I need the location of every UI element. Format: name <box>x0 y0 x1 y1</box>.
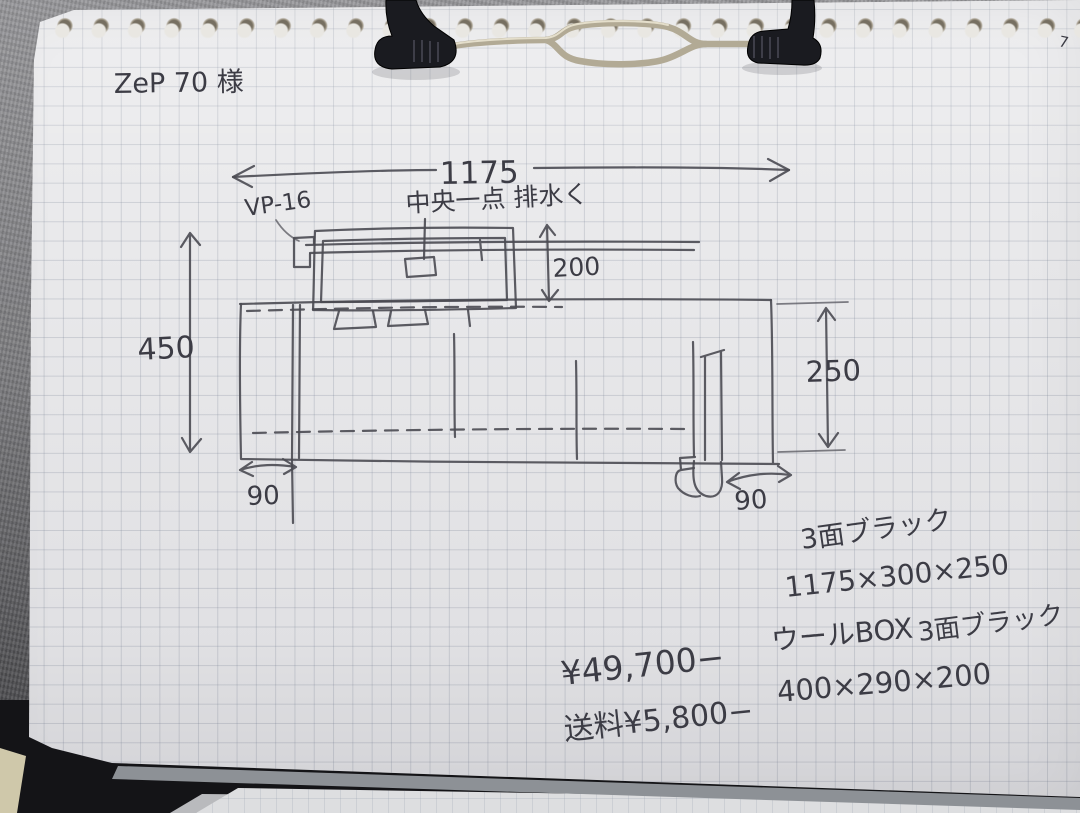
photo-scene: ZeP 70 様 7 1175 VP-16 中央一点 排水く <box>0 0 1080 813</box>
binder-holes <box>46 12 1080 42</box>
graph-paper-sheet <box>0 0 1080 813</box>
